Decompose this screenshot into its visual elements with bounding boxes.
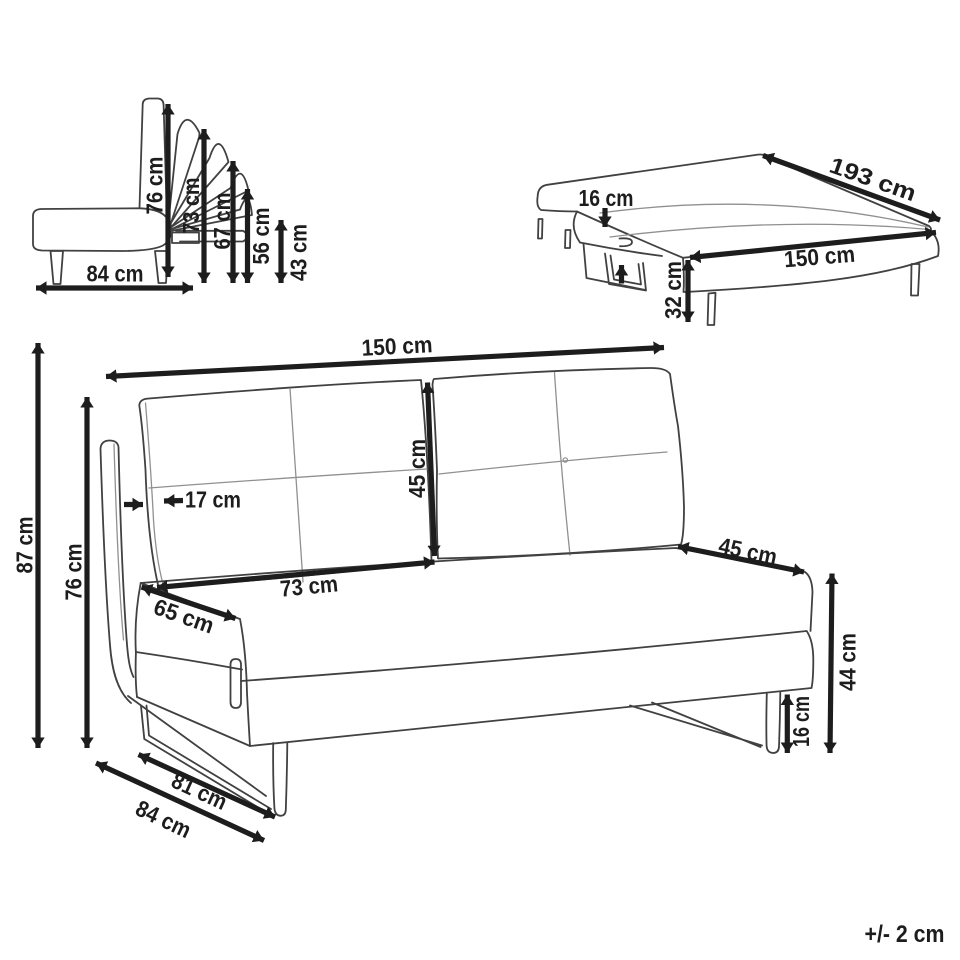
svg-text:45 cm: 45 cm <box>404 439 430 498</box>
svg-text:73 cm: 73 cm <box>178 178 204 234</box>
svg-text:76 cm: 76 cm <box>142 157 168 215</box>
svg-text:150 cm: 150 cm <box>783 241 856 273</box>
svg-text:16 cm: 16 cm <box>788 696 814 747</box>
svg-text:+/- 2 cm: +/- 2 cm <box>865 921 945 948</box>
svg-text:73 cm: 73 cm <box>279 570 339 601</box>
svg-text:84 cm: 84 cm <box>87 261 144 287</box>
svg-text:44 cm: 44 cm <box>835 633 861 691</box>
svg-text:16 cm: 16 cm <box>579 185 634 211</box>
svg-text:76 cm: 76 cm <box>61 544 87 601</box>
svg-text:45 cm: 45 cm <box>716 532 779 570</box>
svg-text:150 cm: 150 cm <box>361 331 433 361</box>
svg-text:81 cm: 81 cm <box>168 767 232 815</box>
svg-text:17 cm: 17 cm <box>185 487 241 513</box>
svg-text:32 cm: 32 cm <box>660 261 686 319</box>
svg-text:67 cm: 67 cm <box>209 193 235 250</box>
svg-text:56 cm: 56 cm <box>248 208 274 265</box>
svg-text:87 cm: 87 cm <box>12 517 38 574</box>
svg-text:43 cm: 43 cm <box>286 224 312 281</box>
